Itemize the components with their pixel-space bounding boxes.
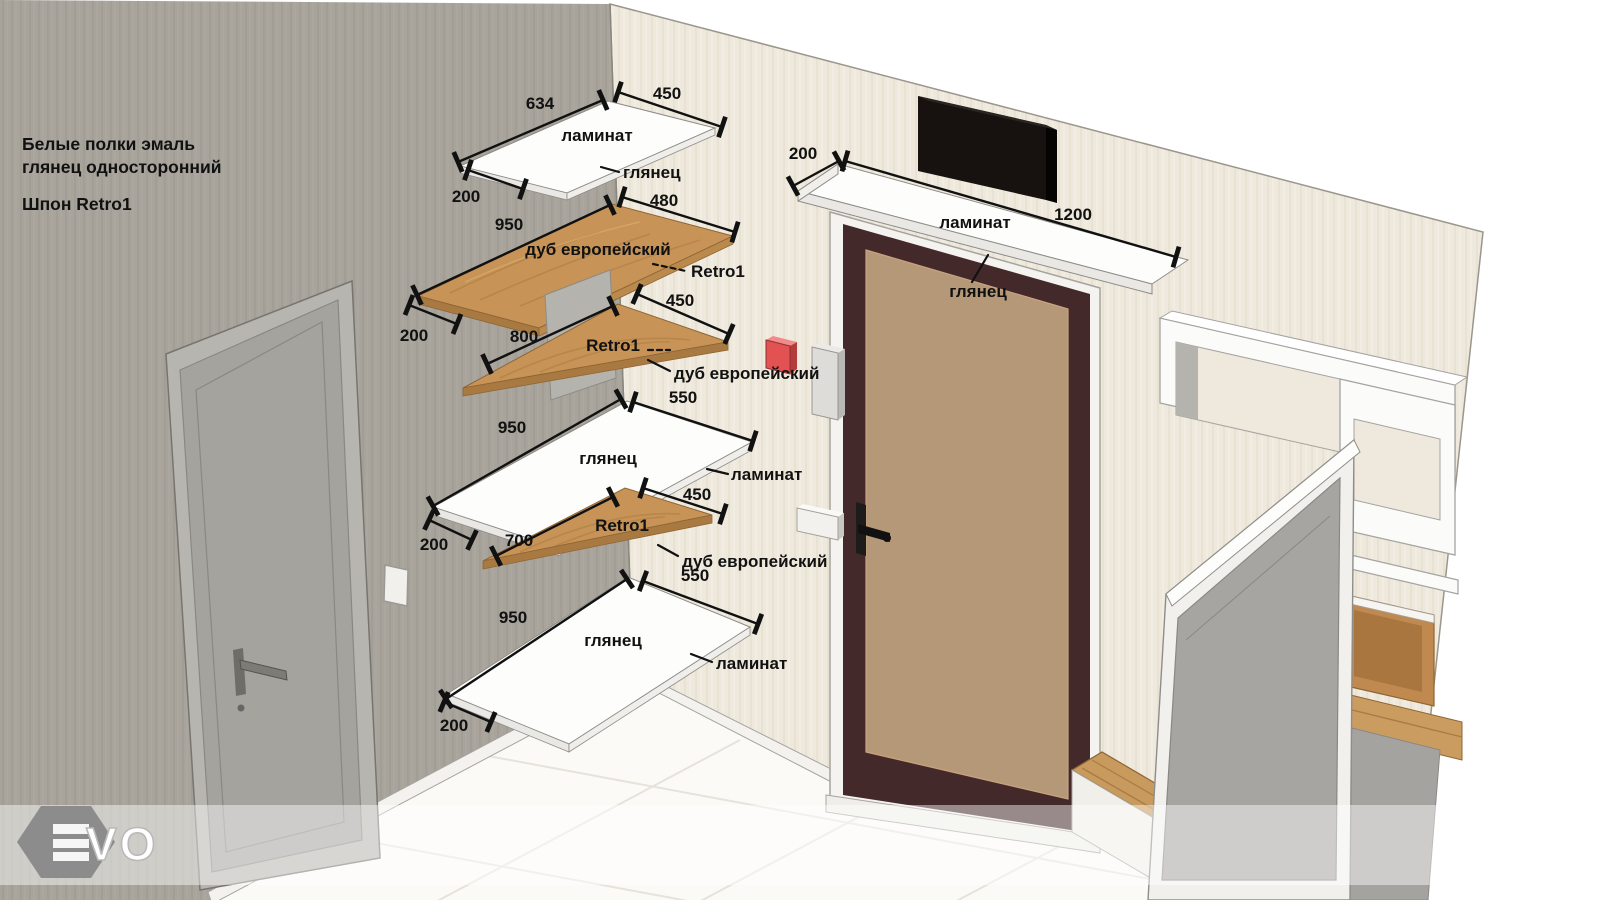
left-door-panel [180, 300, 362, 872]
shelf-2-edge: Retro1 [691, 262, 745, 281]
shelf-4-edge: ламинат [731, 465, 802, 484]
shelf-3-dim-right: 450 [666, 291, 694, 310]
shelf-1-edge: глянец [623, 163, 681, 182]
left-door [166, 281, 380, 890]
shelf-1-dim-right: 450 [653, 84, 681, 103]
left-door-keyhole [238, 705, 245, 712]
shelf-6-dim-side: 200 [440, 716, 468, 735]
shelf-5-dim-right: 450 [683, 485, 711, 504]
shelf-3-surface: Retro1 [586, 336, 640, 355]
shelf-4-surface: глянец [579, 449, 637, 468]
shelf-6-surface: глянец [584, 631, 642, 650]
shelf-6-dim-back: 950 [499, 608, 527, 627]
shelf-6-dim-right: 550 [681, 566, 709, 585]
door-shelf-dim-back: 1200 [1054, 205, 1092, 224]
shelf-2-surface: дуб европейский [525, 240, 670, 259]
entrance-door [826, 212, 1100, 853]
black-panel-side [1046, 125, 1057, 203]
rendered-scene: VO Белые по [0, 0, 1600, 900]
door-shelf-surface: ламинат [939, 213, 1010, 232]
shelf-2-dim-side: 200 [400, 326, 428, 345]
shelf-3-edge: дуб европейский [674, 364, 819, 383]
evo-logo-text: VO [86, 818, 158, 870]
shelf-1-dim-side: 200 [452, 187, 480, 206]
shelf-5-surface: Retro1 [595, 516, 649, 535]
door-shelf-dim-side: 200 [789, 144, 817, 163]
shelf-5-dim-back: 700 [505, 531, 533, 550]
intercom-side [838, 349, 845, 420]
note-line-3: Шпон Retro1 [22, 194, 132, 214]
shelf-3-dim-back: 800 [510, 327, 538, 346]
watermark-band [0, 805, 1600, 885]
note-line-2: глянец односторонний [22, 157, 222, 177]
shelf-6-edge: ламинат [716, 654, 787, 673]
switch-side [838, 513, 844, 540]
scene-drawing: VO Белые по [0, 0, 1600, 900]
shelf-2-dim-right: 480 [650, 191, 678, 210]
shelf-2-dim-back: 950 [495, 215, 523, 234]
shelf-1-dim-back: 634 [526, 94, 555, 113]
entrance-door-panel [866, 250, 1068, 799]
shelf-4-dim-right: 550 [669, 388, 697, 407]
shelf-4-dim-side: 200 [420, 535, 448, 554]
light-switch-left-wall [384, 565, 408, 606]
wall-unit-a-inner-side [1176, 342, 1198, 420]
door-shelf-edge: глянец [949, 282, 1007, 301]
entrance-door-handle-knob [883, 534, 891, 542]
intercom-front [812, 347, 838, 420]
shelf-1-surface: ламинат [561, 126, 632, 145]
shelf-4-dim-back: 950 [498, 418, 526, 437]
note-line-1: Белые полки эмаль [22, 134, 195, 154]
